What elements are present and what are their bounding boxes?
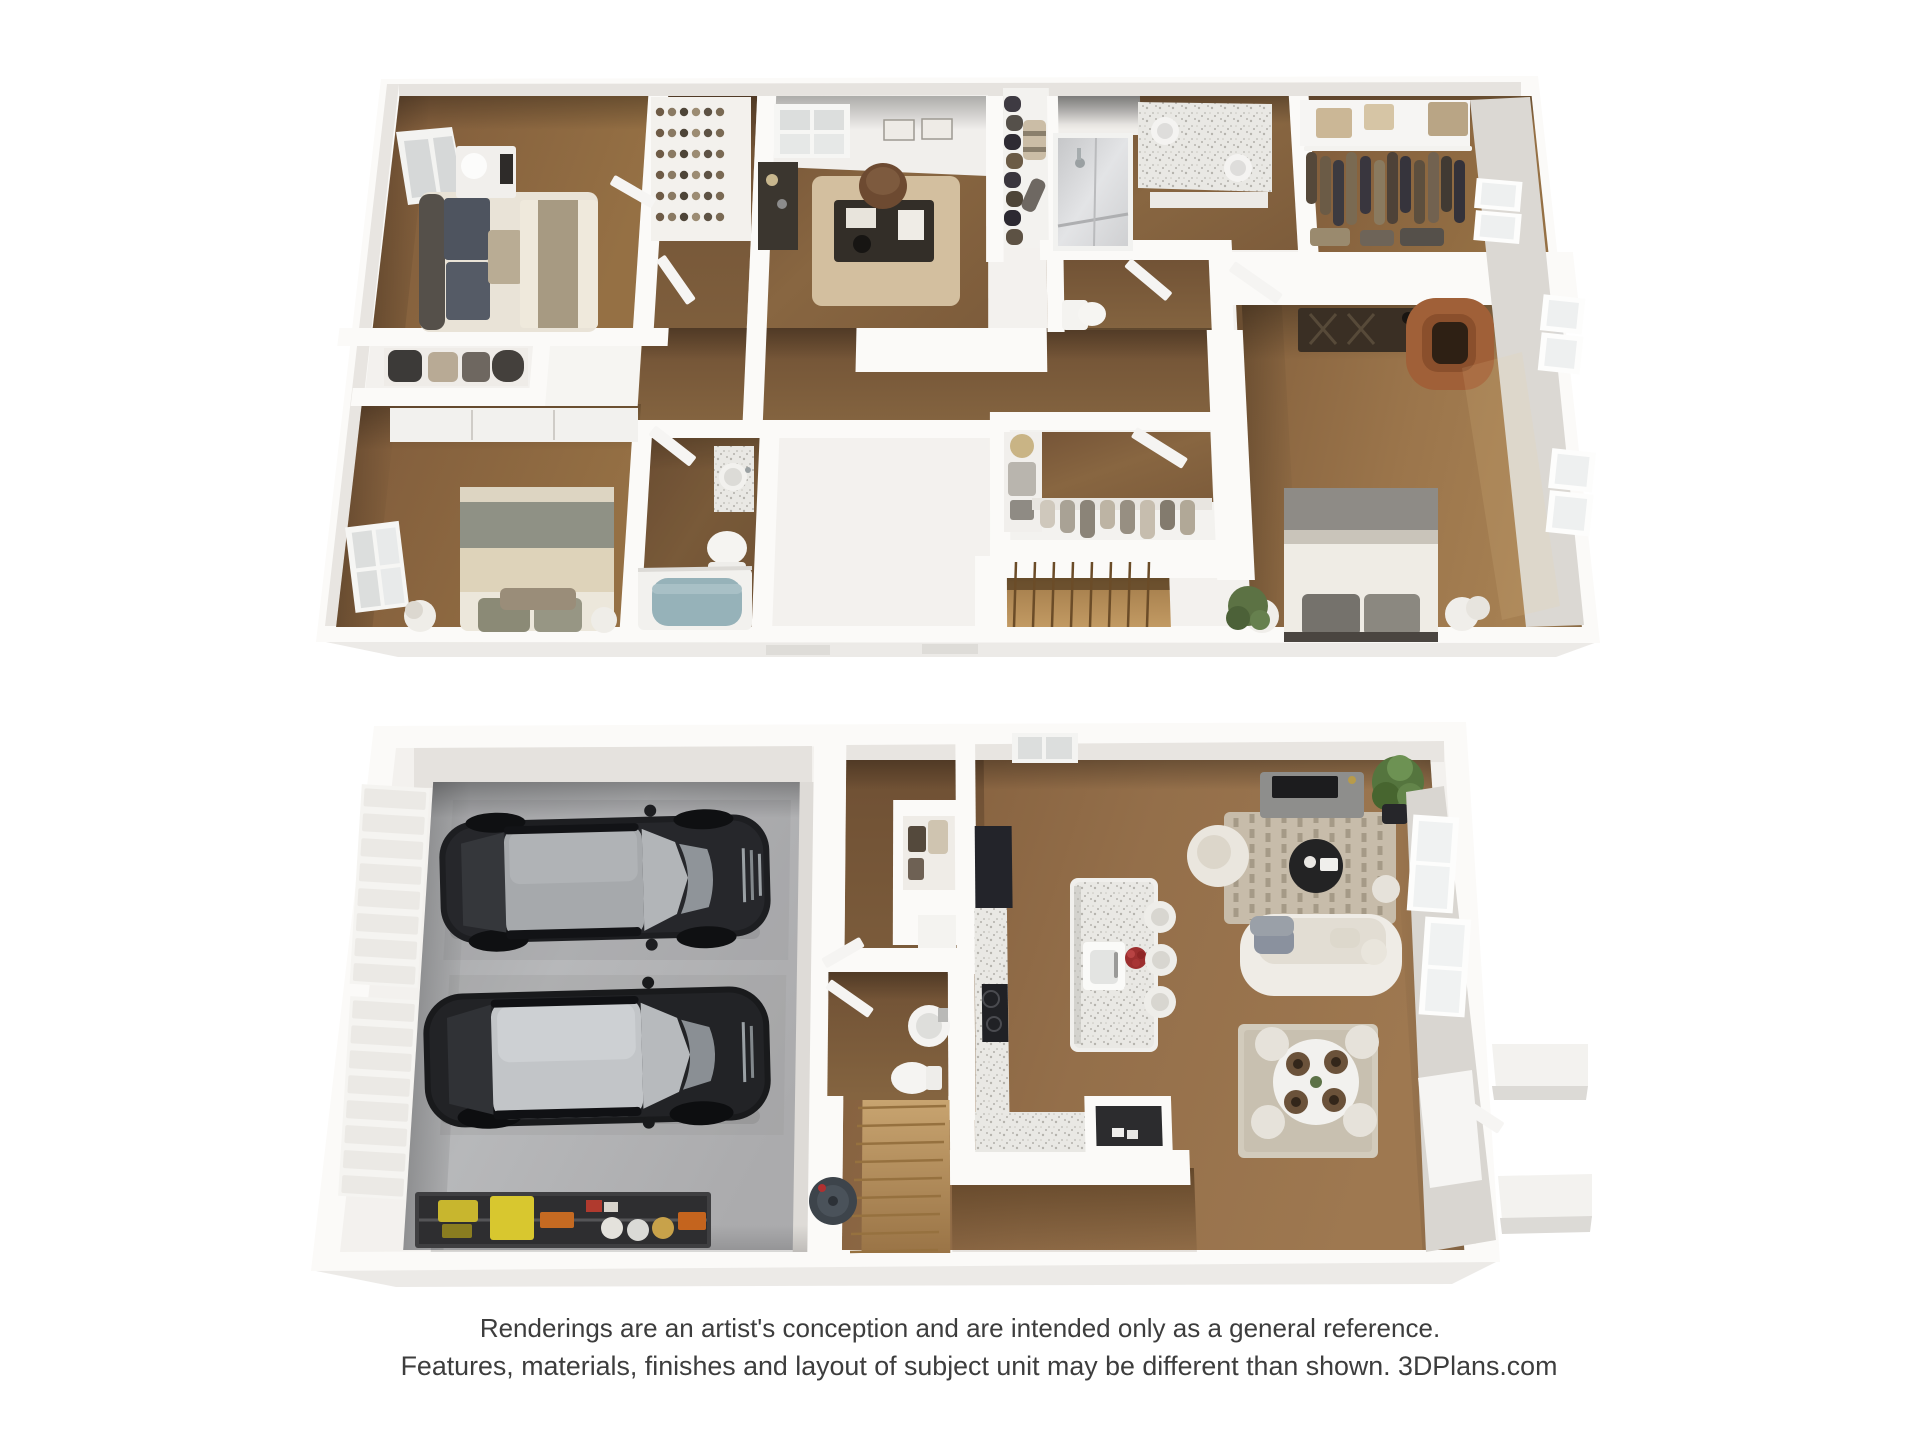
svg-text:Features, materials, finishes: Features, materials, finishes and layout… — [401, 1351, 1558, 1381]
svg-text:Renderings are an artist's con: Renderings are an artist's conception an… — [480, 1313, 1440, 1343]
